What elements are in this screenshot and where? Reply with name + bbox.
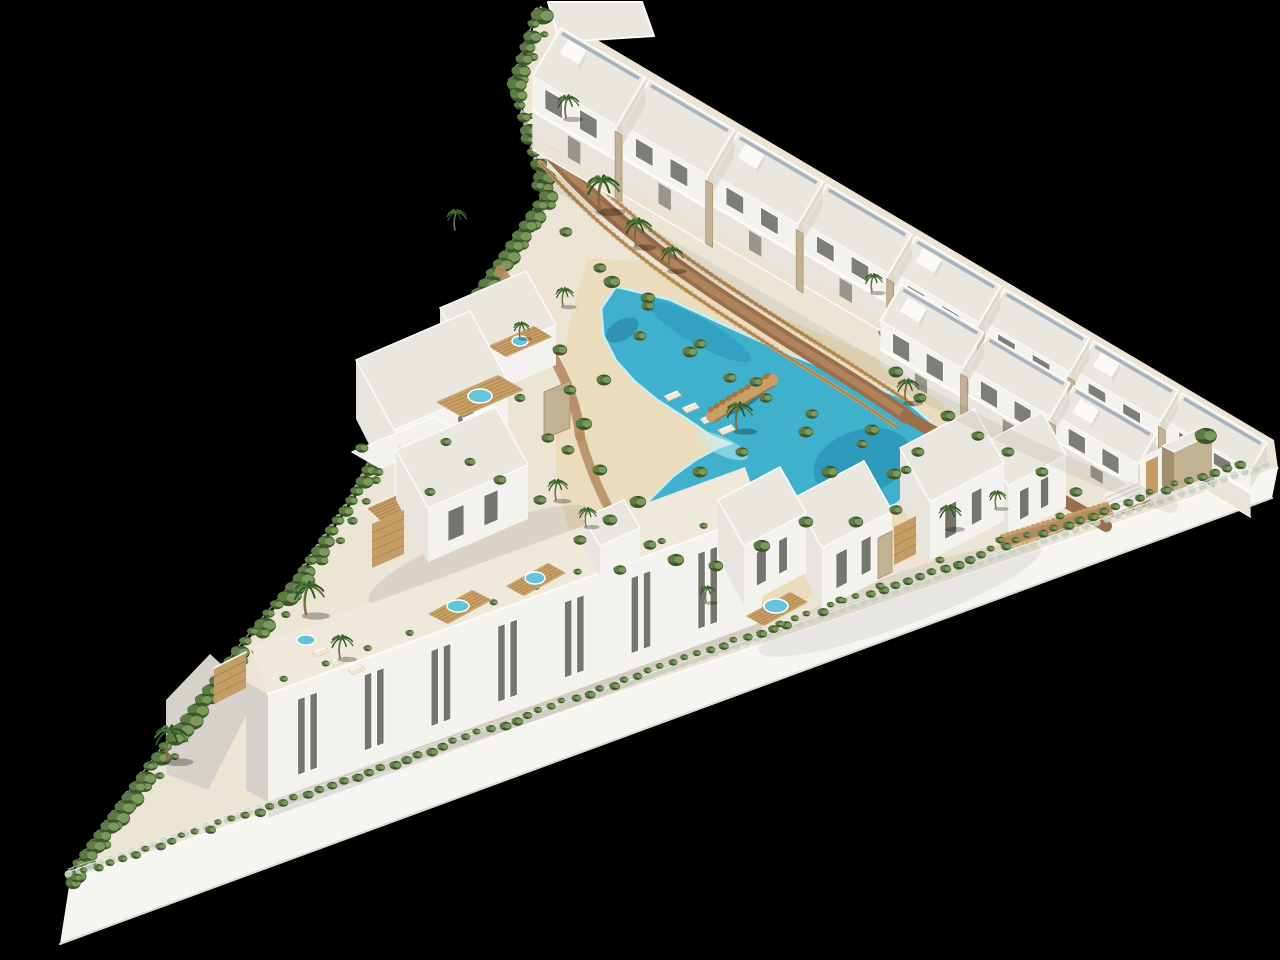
shrub-light bbox=[659, 664, 663, 667]
shrub-light bbox=[1214, 470, 1220, 475]
villa-c-window bbox=[971, 488, 981, 526]
spa-tub bbox=[468, 389, 492, 403]
shrub-light bbox=[583, 420, 592, 427]
shrub-light bbox=[331, 528, 338, 534]
shrub-light bbox=[550, 704, 555, 708]
shrub-light bbox=[649, 542, 656, 548]
shrub-light bbox=[577, 570, 582, 574]
shrub-light bbox=[135, 853, 141, 857]
shrub-light bbox=[505, 723, 511, 728]
shrub-light bbox=[445, 439, 451, 444]
shrub-light bbox=[1041, 469, 1048, 475]
shrub-light bbox=[493, 600, 498, 604]
shrub-light bbox=[181, 833, 185, 836]
shrub-light bbox=[794, 616, 798, 620]
shrub-light bbox=[122, 856, 127, 860]
shrub-light bbox=[548, 202, 555, 208]
shrub-light bbox=[696, 651, 700, 655]
shrub-light bbox=[83, 868, 87, 871]
shrub-light bbox=[611, 278, 620, 285]
shrub-light bbox=[579, 537, 586, 543]
shrub-light bbox=[465, 735, 470, 739]
shrub-light bbox=[210, 827, 216, 832]
shrub-light bbox=[1042, 531, 1048, 536]
shrub-light bbox=[366, 499, 371, 503]
shrub-light bbox=[893, 471, 901, 477]
shrub-light bbox=[945, 566, 951, 571]
apartment-window bbox=[643, 571, 651, 650]
shrub-light bbox=[340, 539, 345, 543]
shrub-light bbox=[599, 265, 606, 271]
shrub-light bbox=[231, 817, 235, 821]
shrub-light bbox=[1174, 481, 1178, 484]
shrub-light bbox=[406, 758, 412, 763]
shrub-light bbox=[245, 638, 252, 643]
shrub-light bbox=[1188, 478, 1193, 482]
shrub-light bbox=[325, 662, 330, 666]
shrub-light bbox=[729, 375, 736, 381]
shrub-light bbox=[614, 684, 620, 689]
shrub-light bbox=[368, 770, 374, 775]
shrub-light bbox=[409, 631, 414, 635]
shrub-light bbox=[661, 539, 666, 543]
shrub-light bbox=[345, 508, 353, 514]
shrub-light bbox=[637, 674, 642, 678]
shrub-light bbox=[259, 810, 265, 815]
shrub-light bbox=[520, 232, 531, 241]
apartment-window bbox=[431, 648, 439, 727]
shrub-light bbox=[999, 538, 1004, 542]
apartment-window bbox=[364, 672, 372, 751]
terrace-pool bbox=[297, 635, 315, 645]
shrub-light bbox=[95, 842, 105, 850]
shrub-light bbox=[599, 686, 604, 690]
shrub-light bbox=[109, 822, 119, 830]
shrub-light bbox=[647, 295, 655, 301]
shrub-light bbox=[532, 21, 538, 26]
shrub-light bbox=[337, 518, 344, 523]
shrub-light bbox=[689, 349, 697, 355]
shrub-light bbox=[1226, 466, 1232, 471]
shrub-light bbox=[285, 612, 290, 616]
shrub-light bbox=[476, 730, 481, 734]
apartment-side bbox=[246, 682, 268, 802]
shrub-light bbox=[282, 801, 288, 805]
shrub-light bbox=[515, 80, 526, 89]
apartment-window bbox=[310, 692, 318, 771]
apartment-window bbox=[443, 643, 451, 722]
spa-tub bbox=[525, 572, 545, 584]
shrub-light bbox=[367, 646, 372, 650]
shrub-light bbox=[699, 469, 707, 475]
shrub-light bbox=[268, 611, 275, 616]
shrub-light bbox=[148, 764, 154, 769]
stone-pier bbox=[796, 230, 803, 294]
shrub-light bbox=[637, 498, 646, 505]
shrub-light bbox=[544, 32, 548, 36]
shrub-light bbox=[1007, 449, 1014, 455]
shrub-light bbox=[539, 202, 547, 209]
shrub-light bbox=[939, 558, 944, 562]
shrub-light bbox=[159, 774, 164, 778]
shrub-light bbox=[723, 644, 728, 648]
shrub-light bbox=[1026, 533, 1030, 536]
shrub-light bbox=[76, 875, 82, 880]
apartment-window bbox=[577, 595, 585, 674]
shrub-light bbox=[1204, 431, 1216, 441]
villa-lower-window bbox=[448, 504, 464, 541]
shrub-light bbox=[830, 603, 834, 606]
shrub-light bbox=[352, 518, 358, 523]
apartment-window bbox=[498, 624, 506, 703]
shrub-light bbox=[559, 347, 567, 353]
shrub-light bbox=[623, 678, 628, 682]
shrub-light bbox=[1103, 509, 1109, 513]
shrub-light bbox=[537, 708, 542, 712]
render-viewport bbox=[0, 0, 1280, 960]
shrub-light bbox=[499, 477, 506, 483]
apartment-window bbox=[510, 619, 518, 698]
shrub-light bbox=[417, 752, 422, 756]
shrub-light bbox=[761, 542, 770, 549]
shrub-light bbox=[252, 629, 258, 634]
shrub-light bbox=[980, 552, 985, 556]
shrub-light bbox=[1079, 518, 1085, 523]
spa-tub bbox=[447, 600, 469, 612]
shrub-light bbox=[609, 517, 617, 523]
shrub-light bbox=[513, 242, 523, 250]
villa-b-window bbox=[836, 548, 847, 589]
shrub-light bbox=[861, 441, 867, 446]
shrub-light bbox=[98, 866, 103, 870]
shrub-light bbox=[576, 696, 581, 700]
shrub-light bbox=[519, 103, 525, 108]
shrub-light bbox=[87, 851, 97, 859]
shrub-light bbox=[755, 379, 762, 385]
shrub-light bbox=[325, 538, 334, 545]
shrub-light bbox=[805, 429, 813, 435]
shrub-light bbox=[160, 844, 166, 849]
shrub-light bbox=[356, 488, 363, 494]
shrub-light bbox=[244, 813, 249, 817]
shrub-light bbox=[202, 696, 211, 704]
shrub-light bbox=[429, 489, 435, 494]
villa-lower-window bbox=[484, 490, 498, 526]
shrub-light bbox=[871, 427, 879, 433]
shrub-light bbox=[375, 478, 381, 482]
shrub-light bbox=[786, 623, 792, 628]
shrub-light bbox=[343, 779, 348, 783]
shrub-light bbox=[527, 713, 532, 717]
shrub-light bbox=[969, 557, 975, 562]
architectural-render bbox=[0, 0, 1280, 960]
shrub-light bbox=[1202, 475, 1208, 480]
shrub-light bbox=[567, 447, 574, 453]
shrub-light bbox=[321, 557, 328, 563]
shrub-light bbox=[276, 601, 283, 607]
shrub-light bbox=[895, 583, 901, 587]
shrub-light bbox=[917, 449, 924, 455]
shrub-light bbox=[879, 584, 884, 588]
shrub-light bbox=[699, 341, 706, 347]
shrub-light bbox=[490, 726, 495, 730]
shrub-light bbox=[101, 832, 111, 840]
shrub-light bbox=[647, 668, 651, 671]
shrub-light bbox=[395, 763, 401, 768]
shrub-light bbox=[469, 459, 475, 464]
shrub-light bbox=[710, 648, 715, 652]
shrub-light bbox=[905, 467, 911, 472]
shrub-light bbox=[958, 562, 964, 567]
shrub-light bbox=[123, 803, 134, 812]
stone-pier bbox=[706, 180, 713, 247]
shrub-light bbox=[1053, 526, 1058, 530]
shrub-light bbox=[194, 830, 198, 834]
shrub-light bbox=[1005, 544, 1011, 549]
shrub-light bbox=[569, 387, 576, 393]
shrub-light bbox=[1075, 489, 1082, 495]
shrub-light bbox=[619, 567, 626, 573]
shrub-light bbox=[829, 468, 838, 475]
shrub-light bbox=[883, 588, 889, 593]
stone-pier bbox=[878, 531, 892, 579]
shrub-light bbox=[526, 44, 535, 51]
shrub-light bbox=[684, 655, 688, 658]
shrub-light bbox=[532, 54, 538, 59]
shrub-light bbox=[217, 820, 221, 823]
shrub-light bbox=[269, 804, 274, 808]
shrub-light bbox=[452, 739, 457, 743]
apartment-window bbox=[298, 697, 306, 776]
shrub-light bbox=[806, 612, 810, 615]
shrub-light bbox=[523, 114, 530, 120]
shrub-light bbox=[741, 449, 748, 455]
shrub-light bbox=[377, 469, 383, 474]
shrub-light bbox=[639, 333, 646, 339]
shrub-light bbox=[547, 192, 558, 200]
shrub-light bbox=[1092, 514, 1098, 519]
shrub-light bbox=[136, 783, 145, 790]
shrub-light bbox=[1165, 488, 1171, 493]
shrub-light bbox=[715, 563, 723, 569]
shrub-light bbox=[822, 610, 828, 615]
plunge-pool bbox=[764, 599, 788, 613]
shrub-light bbox=[319, 787, 324, 791]
shrub-light bbox=[380, 765, 385, 769]
shrub-light bbox=[855, 519, 863, 525]
shrub-light bbox=[1239, 462, 1245, 467]
shrub-light bbox=[672, 660, 677, 664]
shrub-light bbox=[1115, 504, 1120, 508]
shrub-light bbox=[839, 598, 844, 602]
shrub-light bbox=[293, 795, 298, 799]
shrub-light bbox=[907, 579, 913, 584]
shrub-light bbox=[779, 622, 784, 626]
shrub-light bbox=[431, 749, 437, 754]
apartment-window bbox=[377, 668, 385, 747]
shrub-light bbox=[109, 861, 114, 865]
shrub-light bbox=[805, 519, 813, 525]
shrub-light bbox=[870, 592, 875, 596]
shrub-light bbox=[855, 594, 859, 597]
shrub-light bbox=[539, 497, 546, 503]
shrub-light bbox=[541, 11, 553, 21]
shrub-light bbox=[703, 524, 708, 528]
shrub-light bbox=[1059, 514, 1064, 518]
apartment-window bbox=[631, 575, 639, 654]
shrub-light bbox=[1128, 500, 1134, 504]
shrub-light bbox=[171, 839, 176, 843]
shrub-light bbox=[331, 783, 337, 788]
shrub-light bbox=[773, 627, 779, 632]
shrub-light bbox=[931, 570, 936, 574]
shrub-light bbox=[361, 445, 368, 451]
shrub-light bbox=[523, 56, 532, 63]
shrub-light bbox=[145, 847, 149, 851]
shrub-light bbox=[519, 395, 525, 400]
shrub-light bbox=[603, 377, 611, 383]
shrub-light bbox=[518, 92, 527, 99]
shrub-light bbox=[174, 754, 179, 758]
apartment-window bbox=[710, 546, 718, 625]
shrub-light bbox=[811, 411, 818, 417]
shrub-light bbox=[990, 547, 994, 551]
shrub-light bbox=[895, 507, 902, 513]
shrub-light bbox=[561, 699, 565, 702]
shrub-light bbox=[675, 556, 684, 563]
shrub-light bbox=[919, 574, 925, 578]
shrub-light bbox=[599, 467, 607, 473]
shrub-light bbox=[547, 435, 554, 441]
shrub-light bbox=[283, 677, 288, 681]
shrub-light bbox=[761, 631, 767, 636]
shrub-light bbox=[565, 229, 572, 235]
shrub-light bbox=[1015, 538, 1019, 542]
shrub-light bbox=[319, 548, 329, 556]
villa-d-window bbox=[1020, 486, 1029, 520]
shrub-light bbox=[442, 744, 448, 749]
shrub-light bbox=[190, 716, 203, 726]
shrub-light bbox=[363, 478, 373, 486]
shrub-light bbox=[307, 792, 313, 797]
shrub-light bbox=[589, 692, 595, 697]
shrub-light bbox=[1068, 523, 1074, 528]
shrub-light bbox=[733, 638, 737, 641]
shrub-light bbox=[747, 635, 752, 639]
shrub-light bbox=[357, 775, 363, 780]
shrub-light bbox=[527, 222, 537, 230]
shrub-light bbox=[351, 498, 358, 503]
shrub-light bbox=[262, 629, 270, 636]
villa-a-window bbox=[756, 547, 766, 586]
shrub-light bbox=[520, 67, 530, 75]
villa-a-window bbox=[779, 536, 788, 574]
villa-d-window bbox=[1041, 476, 1049, 510]
shrub-light bbox=[517, 719, 523, 724]
shrub-light bbox=[531, 33, 541, 41]
shrub-light bbox=[647, 303, 654, 309]
villa-b-window bbox=[861, 536, 871, 576]
shrub-light bbox=[765, 395, 772, 401]
shrub-light bbox=[310, 557, 317, 563]
apartment-window bbox=[564, 599, 572, 678]
